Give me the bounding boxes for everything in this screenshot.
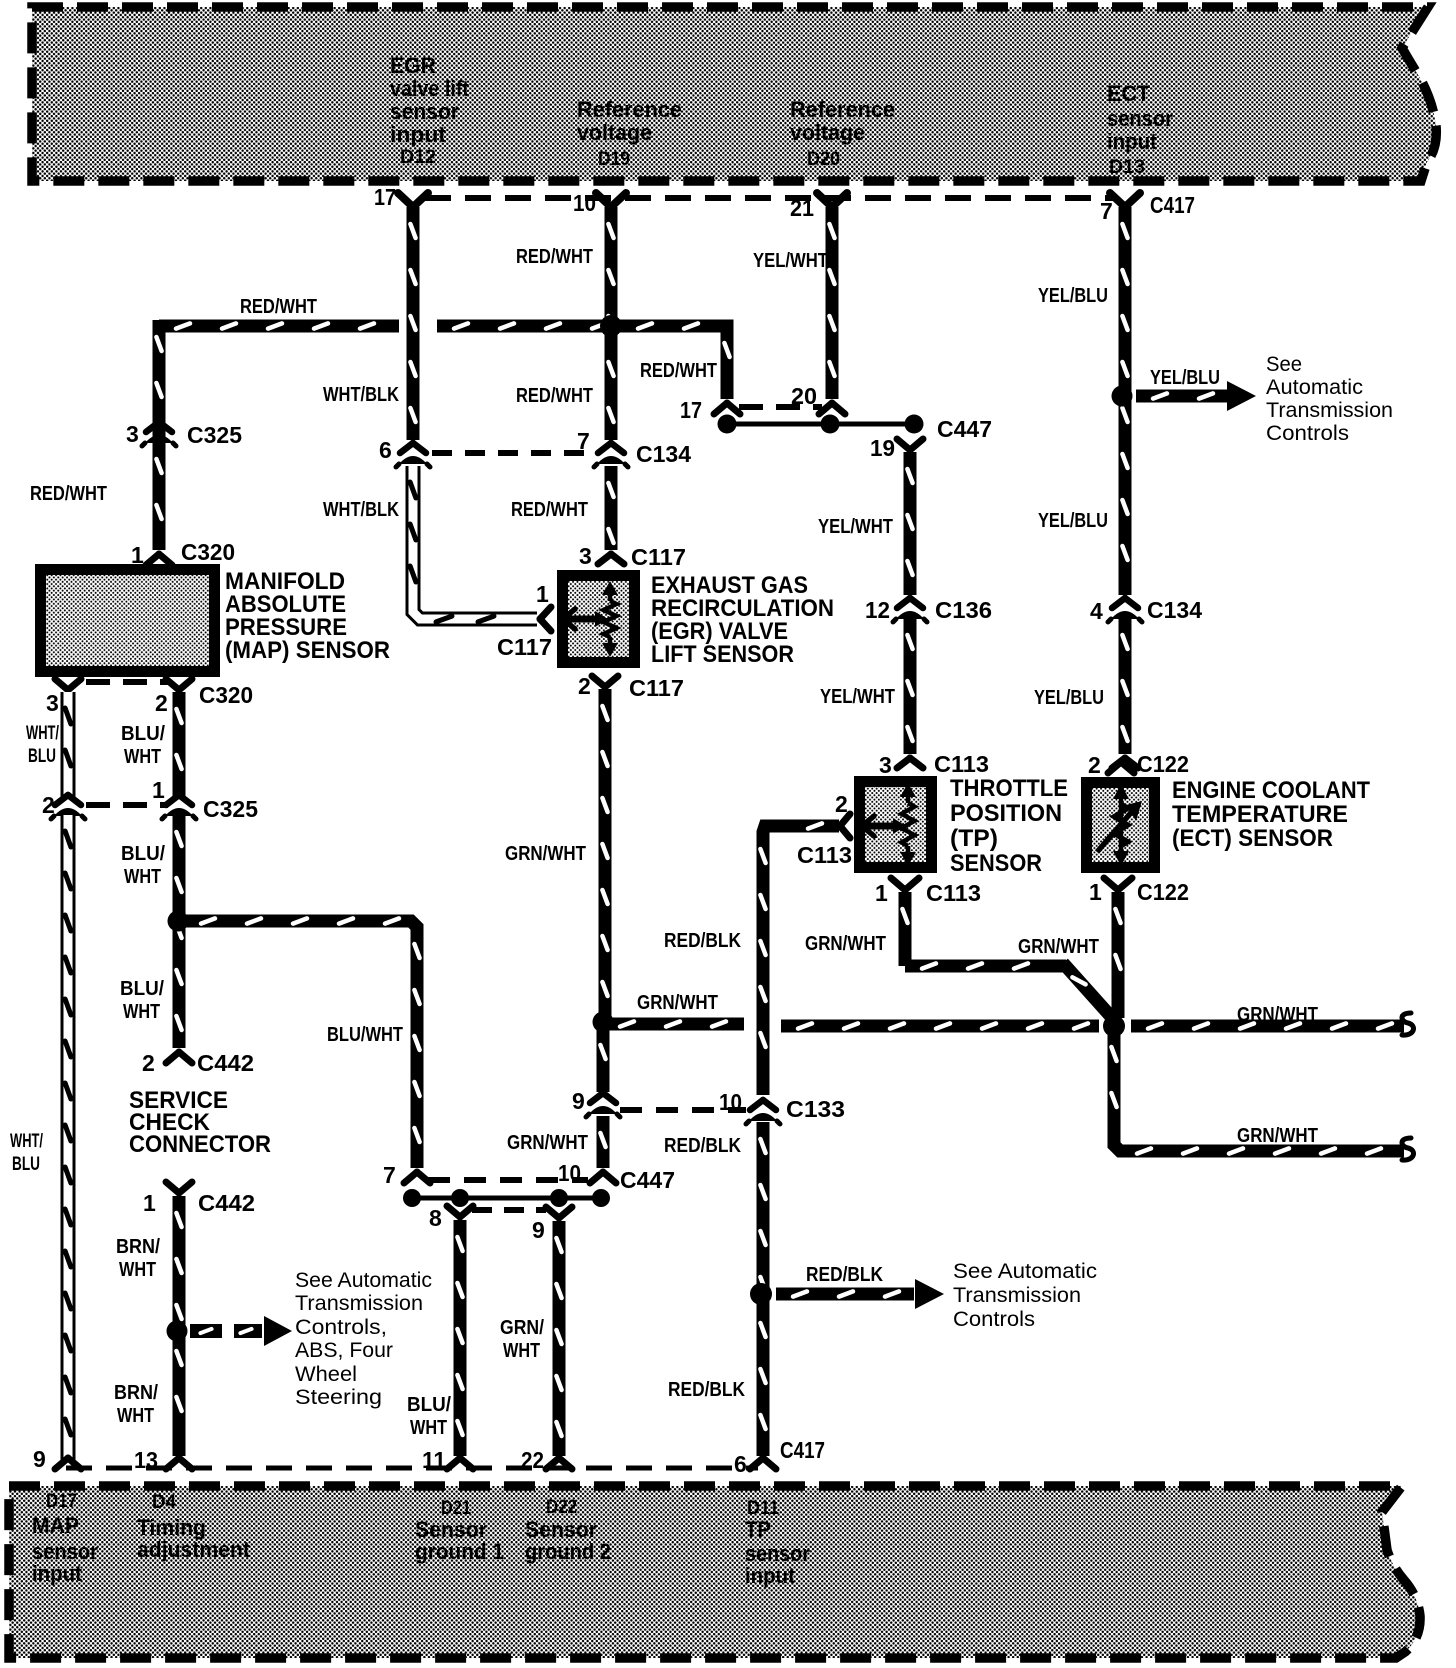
svg-text:C447: C447 — [620, 1167, 675, 1193]
svg-text:2: 2 — [578, 673, 591, 699]
svg-text:Controls: Controls — [1266, 422, 1349, 445]
svg-text:WHT/: WHT/ — [26, 723, 59, 744]
svg-text:8: 8 — [429, 1205, 442, 1231]
svg-text:adjustment: adjustment — [137, 1537, 251, 1562]
svg-text:17: 17 — [680, 397, 702, 423]
svg-text:RED/WHT: RED/WHT — [640, 360, 717, 382]
svg-text:2: 2 — [1088, 752, 1101, 778]
svg-text:C442: C442 — [198, 1190, 255, 1216]
svg-text:CONNECTOR: CONNECTOR — [129, 1131, 271, 1158]
svg-text:3: 3 — [126, 421, 139, 447]
svg-text:1: 1 — [1089, 879, 1102, 905]
svg-text:3: 3 — [46, 690, 59, 716]
svg-text:YEL/WHT: YEL/WHT — [818, 516, 893, 538]
svg-text:WHT: WHT — [124, 866, 161, 888]
svg-text:C134: C134 — [636, 441, 691, 467]
svg-text:C113: C113 — [934, 751, 989, 777]
svg-text:BLU/: BLU/ — [121, 843, 165, 865]
svg-text:EGR: EGR — [390, 53, 436, 78]
svg-text:19: 19 — [870, 435, 895, 461]
svg-text:BLU: BLU — [12, 1154, 40, 1175]
svg-text:RED/BLK: RED/BLK — [668, 1379, 745, 1401]
svg-text:sensor: sensor — [390, 99, 459, 124]
svg-text:WHT: WHT — [119, 1259, 156, 1281]
svg-text:input: input — [1107, 129, 1158, 154]
svg-text:C417: C417 — [780, 1437, 825, 1463]
svg-text:D20: D20 — [807, 149, 840, 170]
svg-text:D12: D12 — [400, 147, 436, 168]
svg-text:13: 13 — [134, 1447, 158, 1473]
svg-text:GRN/: GRN/ — [500, 1317, 544, 1339]
svg-text:11: 11 — [422, 1447, 446, 1473]
svg-text:9: 9 — [532, 1217, 545, 1243]
svg-text:RED/WHT: RED/WHT — [30, 483, 107, 505]
svg-text:RED/WHT: RED/WHT — [511, 499, 588, 521]
svg-text:BLU/WHT: BLU/WHT — [327, 1024, 403, 1046]
svg-text:D21: D21 — [441, 1498, 471, 1519]
svg-text:2: 2 — [142, 1050, 155, 1076]
svg-text:C136: C136 — [935, 597, 992, 623]
svg-text:Wheel: Wheel — [295, 1363, 357, 1386]
svg-text:C442: C442 — [197, 1050, 254, 1076]
svg-text:(ECT) SENSOR: (ECT) SENSOR — [1172, 825, 1333, 852]
svg-text:SENSOR: SENSOR — [950, 850, 1042, 877]
svg-text:RED/BLK: RED/BLK — [664, 930, 741, 952]
svg-text:1: 1 — [131, 542, 144, 568]
svg-text:1: 1 — [875, 880, 888, 906]
svg-text:C122: C122 — [1137, 879, 1189, 905]
svg-text:YEL/BLU: YEL/BLU — [1150, 367, 1220, 389]
svg-text:(TP): (TP) — [950, 825, 998, 852]
svg-text:1: 1 — [536, 581, 549, 607]
svg-text:C133: C133 — [786, 1096, 845, 1122]
svg-text:C113: C113 — [926, 880, 981, 906]
svg-text:D19: D19 — [598, 149, 630, 170]
svg-text:Transmission: Transmission — [953, 1284, 1081, 1307]
svg-text:input: input — [745, 1563, 796, 1588]
svg-text:GRN/WHT: GRN/WHT — [1018, 936, 1099, 958]
svg-text:C117: C117 — [629, 675, 684, 701]
svg-text:2: 2 — [155, 690, 168, 716]
svg-text:voltage: voltage — [577, 120, 652, 145]
svg-text:7: 7 — [383, 1162, 396, 1188]
svg-text:voltage: voltage — [790, 120, 865, 145]
svg-text:6: 6 — [734, 1451, 747, 1477]
svg-text:ground 1: ground 1 — [415, 1539, 504, 1564]
svg-text:sensor: sensor — [1107, 106, 1173, 131]
svg-text:valve lift: valve lift — [390, 76, 470, 101]
svg-text:GRN/WHT: GRN/WHT — [1237, 1004, 1318, 1026]
svg-text:Transmission: Transmission — [295, 1292, 423, 1315]
svg-text:input: input — [390, 122, 447, 147]
svg-text:RED/WHT: RED/WHT — [240, 296, 317, 318]
svg-text:GRN/WHT: GRN/WHT — [1237, 1125, 1318, 1147]
svg-text:WHT: WHT — [503, 1340, 540, 1362]
svg-text:7: 7 — [577, 428, 590, 454]
svg-text:WHT/: WHT/ — [10, 1131, 43, 1152]
svg-text:C134: C134 — [1147, 597, 1202, 623]
svg-text:YEL/BLU: YEL/BLU — [1038, 285, 1108, 307]
svg-text:C117: C117 — [631, 544, 686, 570]
svg-text:See: See — [1266, 353, 1302, 376]
svg-text:ABS, Four: ABS, Four — [295, 1339, 393, 1362]
svg-text:9: 9 — [33, 1446, 46, 1472]
svg-text:D22: D22 — [546, 1497, 577, 1518]
svg-text:TEMPERATURE: TEMPERATURE — [1172, 801, 1348, 828]
svg-text:C320: C320 — [181, 539, 235, 565]
svg-text:D17: D17 — [46, 1491, 77, 1512]
svg-text:BRN/: BRN/ — [114, 1382, 158, 1404]
svg-text:WHT: WHT — [410, 1417, 447, 1439]
svg-text:21: 21 — [790, 195, 814, 221]
svg-text:LIFT SENSOR: LIFT SENSOR — [651, 641, 794, 668]
svg-text:C320: C320 — [199, 682, 253, 708]
svg-text:C113: C113 — [797, 842, 852, 868]
svg-text:9: 9 — [572, 1088, 585, 1114]
svg-text:2: 2 — [42, 792, 55, 818]
svg-text:input: input — [32, 1561, 83, 1586]
svg-text:BLU/: BLU/ — [407, 1394, 451, 1416]
svg-text:RED/BLK: RED/BLK — [806, 1264, 883, 1286]
svg-text:C325: C325 — [203, 796, 258, 822]
svg-text:RED/WHT: RED/WHT — [516, 246, 593, 268]
svg-text:1: 1 — [152, 777, 165, 803]
svg-text:BLU/: BLU/ — [121, 723, 165, 745]
svg-text:GRN/WHT: GRN/WHT — [505, 843, 586, 865]
svg-text:BRN/: BRN/ — [116, 1236, 160, 1258]
svg-text:Controls: Controls — [953, 1308, 1035, 1331]
svg-text:20: 20 — [791, 383, 817, 409]
svg-text:TP: TP — [745, 1517, 771, 1542]
svg-text:Reference: Reference — [790, 97, 895, 122]
svg-text:MAP: MAP — [32, 1513, 79, 1538]
svg-text:See Automatic: See Automatic — [295, 1269, 432, 1292]
svg-text:C117: C117 — [497, 634, 552, 660]
svg-text:22: 22 — [521, 1447, 544, 1473]
svg-text:See Automatic: See Automatic — [953, 1260, 1097, 1283]
svg-text:12: 12 — [865, 597, 890, 623]
svg-text:6: 6 — [379, 437, 392, 463]
svg-text:RED/BLK: RED/BLK — [664, 1135, 741, 1157]
svg-text:Automatic: Automatic — [1266, 376, 1363, 399]
svg-text:YEL/BLU: YEL/BLU — [1038, 510, 1108, 532]
svg-text:Transmission: Transmission — [1266, 399, 1393, 422]
svg-text:WHT/BLK: WHT/BLK — [323, 384, 399, 406]
svg-text:GRN/WHT: GRN/WHT — [805, 933, 886, 955]
svg-text:(MAP) SENSOR: (MAP) SENSOR — [225, 637, 390, 664]
svg-text:D13: D13 — [1109, 157, 1145, 178]
svg-text:THROTTLE: THROTTLE — [950, 775, 1068, 802]
svg-text:Controls,: Controls, — [295, 1316, 387, 1339]
svg-text:C447: C447 — [937, 416, 992, 442]
svg-text:WHT: WHT — [124, 746, 161, 768]
svg-text:10: 10 — [719, 1089, 742, 1115]
svg-text:Reference: Reference — [577, 97, 682, 122]
svg-text:C122: C122 — [1137, 751, 1189, 777]
svg-text:C325: C325 — [187, 422, 242, 448]
svg-text:17: 17 — [374, 184, 396, 210]
svg-text:ground 2: ground 2 — [525, 1539, 611, 1564]
svg-text:1: 1 — [143, 1190, 156, 1216]
svg-text:3: 3 — [579, 543, 592, 569]
svg-text:3: 3 — [879, 752, 892, 778]
svg-text:2: 2 — [835, 791, 848, 817]
svg-text:7: 7 — [1100, 198, 1113, 224]
svg-text:ECT: ECT — [1107, 81, 1151, 106]
svg-text:GRN/WHT: GRN/WHT — [637, 992, 718, 1014]
svg-text:4: 4 — [1090, 598, 1103, 624]
svg-text:YEL/BLU: YEL/BLU — [1034, 687, 1104, 709]
svg-text:WHT: WHT — [123, 1001, 160, 1023]
svg-text:YEL/WHT: YEL/WHT — [753, 250, 828, 272]
svg-text:POSITION: POSITION — [950, 800, 1062, 827]
svg-text:WHT: WHT — [117, 1405, 154, 1427]
svg-text:YEL/WHT: YEL/WHT — [820, 686, 895, 708]
svg-text:BLU/: BLU/ — [120, 978, 164, 1000]
svg-text:WHT/BLK: WHT/BLK — [323, 499, 399, 521]
svg-text:BLU: BLU — [28, 746, 56, 767]
svg-text:D11: D11 — [747, 1498, 779, 1519]
svg-text:10: 10 — [573, 190, 596, 216]
svg-text:Steering: Steering — [295, 1386, 382, 1409]
svg-text:D4: D4 — [152, 1492, 176, 1513]
svg-text:10: 10 — [558, 1160, 581, 1186]
svg-text:RED/WHT: RED/WHT — [516, 385, 593, 407]
svg-text:ENGINE COOLANT: ENGINE COOLANT — [1172, 777, 1370, 804]
svg-text:GRN/WHT: GRN/WHT — [507, 1132, 588, 1154]
svg-text:C417: C417 — [1150, 192, 1195, 218]
